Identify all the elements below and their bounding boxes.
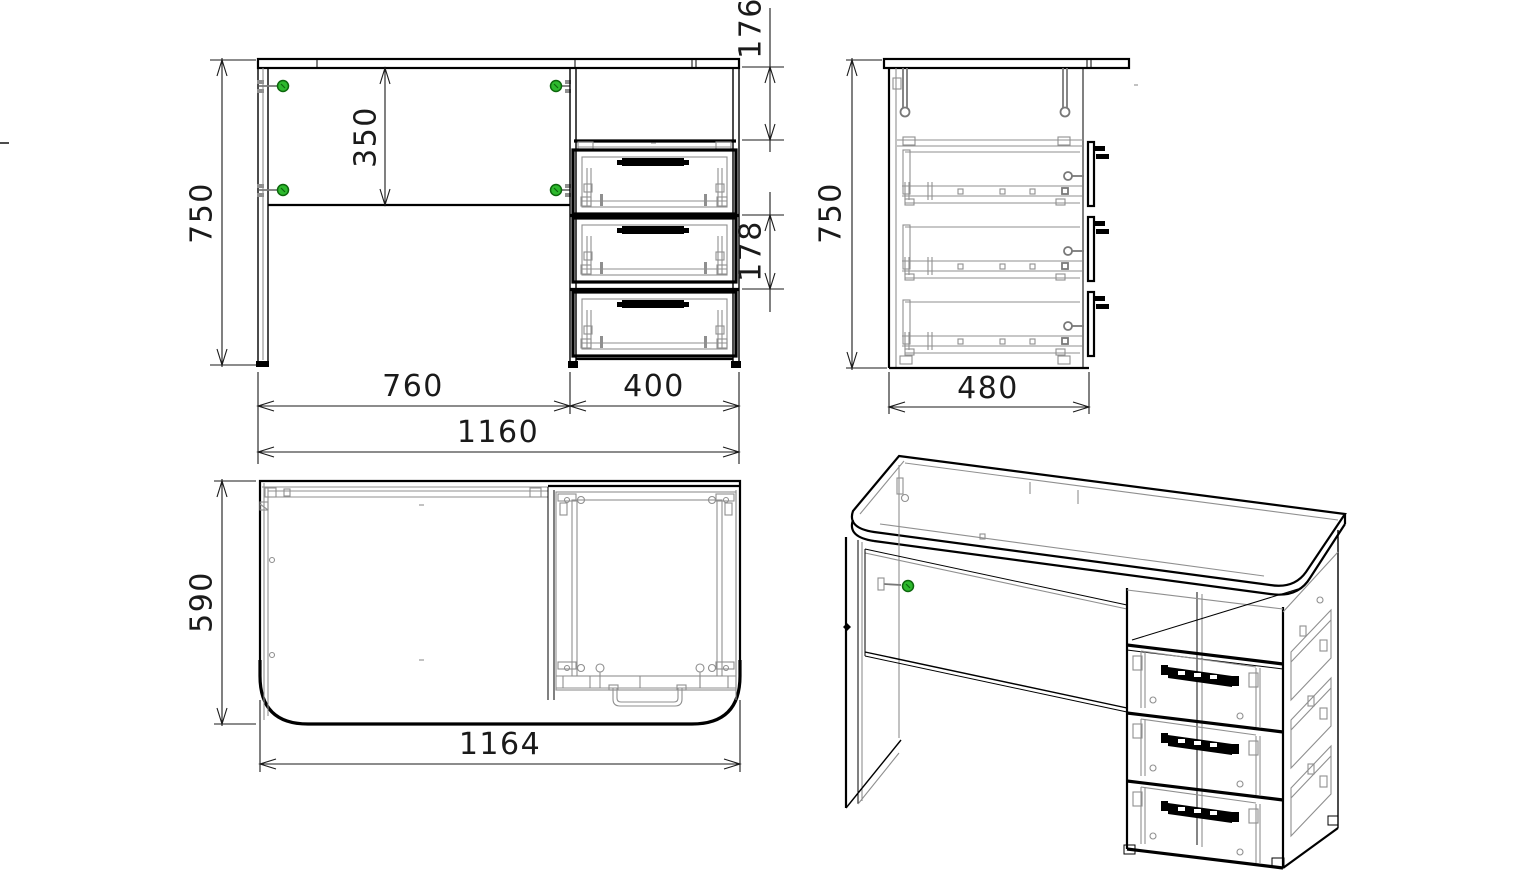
- iso-desktop: [852, 456, 1345, 595]
- dim-label-pedestal-width: 400: [623, 369, 685, 404]
- iso-side-internals: [1291, 597, 1331, 836]
- side-dimensions: 750 480: [814, 58, 1090, 414]
- front-dimensions: 750 350 176 178 760: [185, 0, 785, 464]
- dim-label-top-compartment: 176: [734, 0, 769, 59]
- dim-label-overall-width: 1160: [457, 415, 539, 450]
- top-left-edge: [260, 483, 424, 720]
- drawer-front-3: [573, 292, 736, 356]
- side-view: 750 480: [814, 58, 1139, 414]
- dim-label-side-height: 750: [814, 182, 849, 244]
- cam-screw-icon: [551, 80, 572, 93]
- iso-back-panel: [865, 549, 1127, 712]
- dim-label-back-panel: 350: [349, 106, 384, 168]
- dim-label-drawer-pitch: 178: [734, 220, 769, 282]
- cam-screws: [257, 80, 571, 197]
- desktop-slab: [258, 59, 739, 68]
- dim-label-desk-width: 760: [382, 369, 444, 404]
- side-drawer-1: [902, 142, 1109, 206]
- cam-screw-icon: [257, 184, 289, 197]
- side-desktop-slab: [884, 59, 1129, 68]
- drawing-canvas: 750 350 176 178 760: [0, 0, 1540, 872]
- side-cabinet: [889, 68, 1138, 368]
- dim-label-top-width: 1164: [459, 727, 541, 762]
- cam-screw-icon: [551, 184, 572, 197]
- cam-screw-icon: [878, 578, 914, 592]
- screw-icon: [1061, 68, 1070, 117]
- cam-screw-icon: [257, 80, 289, 93]
- top-drawer-box: [548, 487, 736, 706]
- left-side-panel: [256, 68, 269, 367]
- dim-label-top-depth: 590: [185, 571, 220, 633]
- drawer-front-2: [573, 218, 736, 282]
- side-drawer-3: [902, 292, 1109, 356]
- isometric-view: [843, 456, 1345, 868]
- dim-label-front-height: 750: [185, 182, 220, 244]
- screw-icon: [901, 68, 910, 117]
- top-view: 590 1164: [185, 479, 741, 772]
- front-view: 750 350 176 178 760: [185, 0, 785, 464]
- drawer-front-1: [573, 150, 736, 214]
- side-drawer-2: [902, 217, 1109, 281]
- dim-label-cabinet-depth: 480: [957, 371, 1019, 406]
- drawing-sheet: 750 350 176 178 760: [0, 0, 1540, 872]
